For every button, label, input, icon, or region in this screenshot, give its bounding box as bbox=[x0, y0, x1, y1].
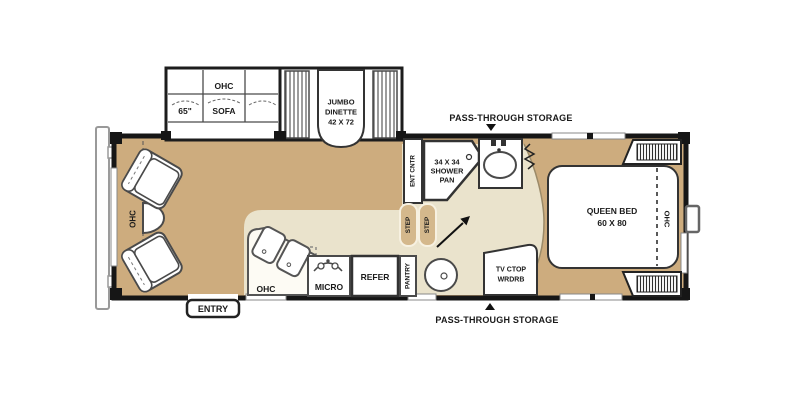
pantry-label: PANTRY bbox=[405, 262, 412, 289]
ent-cntr-label: ENT CNTR bbox=[410, 155, 417, 187]
kitchen-ohc-label: OHC bbox=[257, 284, 276, 294]
dinette-label-1: JUMBO bbox=[327, 98, 354, 107]
step-label-1: STEP bbox=[405, 217, 412, 233]
storage-callout-bottom: PASS-THROUGH STORAGE bbox=[435, 303, 558, 325]
front-ohc-label: OHC bbox=[129, 210, 138, 228]
toilet-icon bbox=[425, 259, 457, 291]
queen-bed bbox=[548, 166, 678, 268]
dinette-bench-right bbox=[373, 71, 397, 138]
rear-bracket bbox=[686, 206, 699, 232]
refer-label: REFER bbox=[361, 272, 390, 282]
tv-wardrobe: TV CTOP WRDRB bbox=[484, 245, 537, 295]
ent-center: ENT CNTR bbox=[404, 139, 422, 203]
wall-corner bbox=[110, 288, 122, 300]
rv-floorplan: OHC 65" SOFA JUMBO DINETTE 42 X 72 OHC O… bbox=[0, 0, 800, 400]
wall-corner bbox=[110, 132, 122, 144]
slide-post bbox=[161, 131, 171, 140]
storage-bottom-label: PASS-THROUGH STORAGE bbox=[435, 315, 558, 325]
bath-sink-icon bbox=[484, 152, 516, 178]
dinette-bench-left bbox=[285, 71, 309, 138]
entry-door: ENTRY bbox=[187, 294, 239, 317]
bath-vanity bbox=[479, 139, 522, 188]
tv-label-2: WRDRB bbox=[498, 277, 525, 284]
sofa-label: SOFA bbox=[212, 106, 235, 116]
bed-label-2: 60 X 80 bbox=[597, 218, 627, 228]
shower-label-3: PAN bbox=[440, 176, 455, 185]
dinette-label-3: 42 X 72 bbox=[328, 118, 354, 127]
arrow-down-icon bbox=[486, 124, 496, 131]
storage-top-label: PASS-THROUGH STORAGE bbox=[449, 113, 572, 123]
dinette-label-2: DINETTE bbox=[325, 108, 357, 117]
entry-label: ENTRY bbox=[198, 304, 228, 314]
arrow-up-icon bbox=[485, 303, 495, 310]
step-label-2: STEP bbox=[424, 217, 431, 233]
wardrobe-bottom bbox=[623, 272, 681, 296]
micro-label: MICRO bbox=[315, 282, 344, 292]
tv-label-1: TV CTOP bbox=[496, 267, 527, 274]
wardrobe-top bbox=[623, 140, 681, 164]
floorplan-canvas: OHC 65" SOFA JUMBO DINETTE 42 X 72 OHC O… bbox=[0, 0, 800, 400]
dinette-slideout: JUMBO DINETTE 42 X 72 bbox=[280, 68, 402, 147]
shower-label-2: SHOWER bbox=[431, 167, 465, 176]
sofa-ohc-label: OHC bbox=[215, 81, 234, 91]
slide-post bbox=[274, 131, 286, 140]
shower-label-1: 34 X 34 bbox=[434, 158, 460, 167]
bed-label-1: QUEEN BED bbox=[587, 206, 638, 216]
sofa-size-label: 65" bbox=[178, 106, 192, 116]
storage-callout-top: PASS-THROUGH STORAGE bbox=[449, 113, 572, 131]
sofa-slideout: OHC 65" SOFA bbox=[166, 68, 280, 140]
bedroom-ohc-label: OHC bbox=[663, 211, 672, 228]
